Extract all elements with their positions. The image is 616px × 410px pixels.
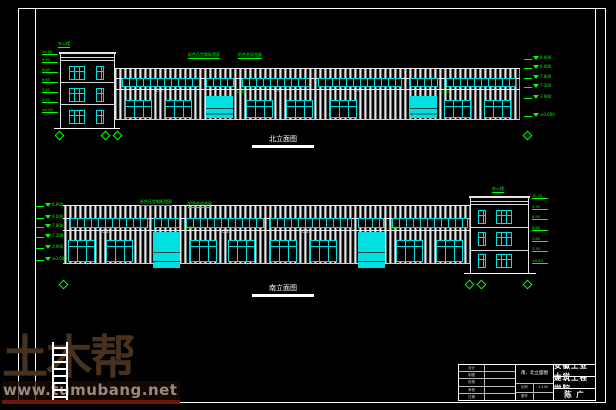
office-window	[96, 88, 104, 102]
level-value: 7.800	[540, 75, 551, 79]
level-value: 9.900	[52, 203, 63, 207]
axis-bubble-icon	[59, 280, 69, 290]
level-marker: 7.200	[524, 84, 551, 88]
office-window	[496, 232, 512, 246]
level-marker: 9.900	[524, 56, 551, 60]
floor-tick: 10.20	[42, 54, 58, 55]
axis-bubble-icon	[113, 131, 123, 141]
floor-tick: 6.90	[42, 72, 58, 73]
office-floor-line	[61, 104, 114, 105]
strip-window-band	[318, 78, 402, 87]
level-marker: ±0.000	[36, 257, 67, 261]
office-window	[96, 110, 104, 124]
storefront-window	[286, 100, 313, 118]
level-triangle-icon	[45, 245, 51, 249]
author-name: 陈 广	[554, 388, 595, 400]
storefront-window	[165, 100, 192, 118]
extra-label: 图号	[516, 393, 534, 401]
watermark-logo: 土木帮	[2, 334, 180, 380]
floor-tick-value: 3.30	[532, 248, 548, 252]
office-floor-line	[61, 60, 114, 61]
field-row: 制图	[459, 371, 515, 378]
elevation-label-north: 北立面图	[252, 136, 314, 148]
office-window	[478, 232, 486, 246]
strip-window-band	[206, 78, 234, 87]
level-marker: 7.200	[36, 234, 63, 238]
level-value: 3.900	[540, 95, 551, 99]
level-marker: ±0.000	[524, 113, 555, 117]
strip-window-band	[358, 218, 384, 228]
storefront-window	[310, 240, 337, 262]
stair-detail	[52, 342, 68, 400]
watermark: 土木帮 www.tumubang.net	[2, 334, 180, 404]
storefront-window	[396, 240, 423, 262]
storefront-window	[190, 240, 217, 262]
strip-window-band	[154, 218, 180, 228]
axis-bubble-icon	[477, 280, 487, 290]
floor-tick: 3.60	[532, 241, 548, 242]
storefront-window	[246, 100, 273, 118]
level-triangle-icon	[533, 95, 539, 99]
level-marker: 7.800	[36, 224, 63, 228]
title-block-org: 安徽工业大学 建筑工程学院 陈 广	[554, 365, 595, 400]
level-triangle-icon	[45, 215, 51, 219]
window-tag: C-2	[156, 89, 163, 93]
floor-tick: ±0.00	[532, 263, 548, 264]
level-value: ±0.000	[540, 113, 555, 117]
wall-annotation: 铝合金组合窗	[238, 53, 262, 59]
level-marker: 3.900	[524, 95, 551, 99]
title-block: 设计 制图 校核 审核 日期 南、北立面图 比例 1:100 图号 安徽工业大学…	[458, 364, 596, 401]
level-value: 3.900	[52, 245, 63, 249]
level-value: 9.900	[540, 56, 551, 60]
office-window	[478, 210, 486, 224]
floor-tick-value: 6.60	[532, 227, 548, 231]
floor-tick-value: 10.20	[42, 51, 58, 55]
axis-bubble-icon	[101, 131, 111, 141]
strip-window-band	[392, 218, 468, 228]
axis-bubble-icon	[523, 280, 533, 290]
wall-annotation: 办公楼	[58, 42, 70, 48]
floor-tick-value: 6.60	[42, 79, 58, 83]
floor-tick-value: 9.90	[42, 59, 58, 63]
window-tag: C-2	[302, 230, 309, 234]
floor-tick: 3.30	[532, 251, 548, 252]
strip-window-band	[70, 218, 148, 228]
level-value: 7.200	[540, 84, 551, 88]
level-triangle-icon	[533, 56, 539, 60]
axis-bubble-icon	[465, 280, 475, 290]
level-marker: 9.900	[36, 203, 63, 207]
elevation-south: 9.900 9.000 7.800 7.200 3.900 ±0.000 10.…	[40, 185, 555, 307]
floor-tick-value: 6.90	[532, 216, 548, 220]
storefront-window	[444, 100, 471, 118]
floor-tick: 3.60	[42, 92, 58, 93]
storefront-window	[125, 100, 152, 118]
elevation-north: 9.900 9.000 7.800 7.200 3.900 ±0.000 10.…	[40, 40, 555, 152]
door-note: 3.000	[440, 91, 450, 95]
level-triangle-icon	[533, 65, 539, 69]
door-note: 3.000	[236, 91, 246, 95]
office-floor-line	[61, 82, 114, 83]
door-note: 3.000	[388, 227, 398, 231]
title-block-fields: 设计 制图 校核 审核 日期	[459, 365, 516, 400]
window-tag: C-2	[274, 89, 281, 93]
wall-annotation: 彩色压型钢板墙面	[140, 200, 172, 206]
office-floor-line	[61, 57, 114, 58]
axis-bubble-icon	[55, 131, 65, 141]
storefront-window	[228, 240, 255, 262]
level-value: 7.800	[52, 224, 63, 228]
storefront-window	[68, 240, 95, 262]
roll-up-door	[153, 232, 180, 268]
floor-tick-value: 3.60	[532, 238, 548, 242]
school-name: 安徽工业大学	[554, 365, 595, 376]
office-window	[69, 66, 85, 80]
floor-tick: 9.90	[42, 62, 58, 63]
extra-label: 比例	[516, 384, 534, 392]
ground-line	[464, 273, 536, 274]
field-label: 日期	[459, 394, 485, 400]
watermark-url: www.tumubang.net	[2, 381, 180, 404]
floor-tick-value: 6.90	[42, 69, 58, 73]
floor-tick-value: ±0.00	[42, 109, 58, 113]
level-triangle-icon	[533, 113, 539, 117]
extra-value: 1:100	[534, 384, 553, 392]
level-value: 7.200	[52, 234, 63, 238]
window-tag: C-2	[222, 230, 229, 234]
floor-tick: ±0.00	[42, 112, 58, 113]
ground-line	[54, 128, 120, 129]
field-row: 审核	[459, 386, 515, 393]
strip-window-band	[122, 78, 200, 87]
office-floor-line	[471, 250, 528, 251]
office-floor-line	[471, 204, 528, 205]
door-note: 3.000	[183, 227, 193, 231]
level-value: ±0.000	[52, 257, 67, 261]
window-tag: C-2	[354, 89, 361, 93]
strip-window-band	[242, 78, 310, 87]
level-triangle-icon	[45, 224, 51, 228]
wall-annotation: 彩色压型钢板墙面	[188, 53, 220, 59]
floor-tick-value: 9.90	[532, 206, 548, 210]
floor-tick-value: ±0.00	[532, 260, 548, 264]
level-value: 9.000	[52, 215, 63, 219]
window-tag: C-2	[102, 230, 109, 234]
storefront-window	[484, 100, 511, 118]
level-triangle-icon	[45, 257, 51, 261]
office-window	[96, 66, 104, 80]
storefront-window	[270, 240, 297, 262]
floor-tick-value: 10.20	[532, 195, 548, 199]
elevation-label-south: 南立面图	[252, 285, 314, 297]
wall-annotation: 办公楼	[492, 187, 504, 193]
floor-tick-value: 3.30	[42, 99, 58, 103]
office-window	[69, 110, 85, 124]
college-name: 建筑工程学院	[554, 376, 595, 388]
field-row: 校核	[459, 378, 515, 385]
field-value	[485, 394, 515, 400]
strip-window-band	[186, 218, 264, 228]
storefront-window	[436, 240, 463, 262]
level-triangle-icon	[533, 75, 539, 79]
floor-tick: 9.90	[532, 209, 548, 210]
level-triangle-icon	[45, 234, 51, 238]
floor-tick: 6.90	[532, 219, 548, 220]
level-triangle-icon	[45, 203, 51, 207]
office-window	[496, 210, 512, 224]
drawing-title: 南、北立面图	[516, 365, 553, 384]
axis-bubble-icon	[523, 131, 533, 141]
level-value: 9.000	[540, 65, 551, 69]
level-triangle-icon	[533, 84, 539, 88]
title-block-middle: 南、北立面图 比例 1:100 图号	[516, 365, 554, 400]
office-window	[478, 254, 486, 268]
roll-up-door	[410, 96, 437, 118]
strip-window-band	[270, 218, 352, 228]
strip-window-band	[446, 78, 516, 87]
extra-row: 图号	[516, 392, 553, 401]
storefront-window	[330, 100, 357, 118]
roll-up-door	[206, 96, 233, 118]
cad-sheet: { "watermark": { "logo": "土木帮", "url": "…	[0, 0, 616, 410]
level-marker: 9.000	[524, 65, 551, 69]
floor-tick: 3.30	[42, 102, 58, 103]
level-marker: 9.000	[36, 215, 63, 219]
office-floor-line	[471, 201, 528, 202]
floor-tick: 6.60	[532, 230, 548, 231]
field-row: 日期	[459, 393, 515, 400]
office-window	[496, 254, 512, 268]
office-window	[69, 88, 85, 102]
extra-value	[534, 393, 553, 401]
strip-window-band	[410, 78, 438, 87]
sheet-border-inner-right	[595, 8, 596, 401]
floor-tick: 6.60	[42, 82, 58, 83]
wall-annotation: 铝合金组合窗	[188, 202, 212, 208]
extra-row: 比例 1:100	[516, 384, 553, 392]
level-marker: 7.800	[524, 75, 551, 79]
storefront-window	[106, 240, 133, 262]
office-floor-line	[471, 227, 528, 228]
level-marker: 3.900	[36, 245, 63, 249]
floor-tick-value: 3.60	[42, 89, 58, 93]
floor-tick: 10.20	[532, 198, 548, 199]
roll-up-door	[358, 232, 385, 268]
